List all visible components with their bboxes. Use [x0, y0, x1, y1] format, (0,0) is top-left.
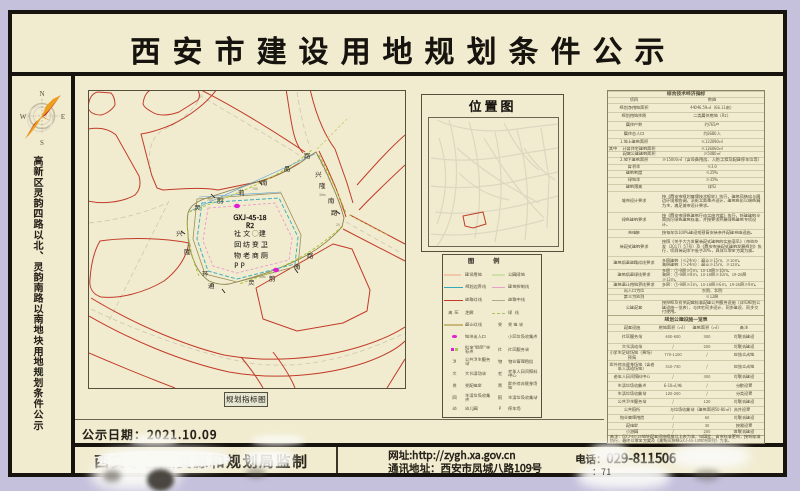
svg-text:E: E: [61, 113, 65, 121]
svg-text:路: 路: [307, 250, 314, 260]
svg-text:韵: 韵: [217, 195, 224, 205]
svg-text:南: 南: [293, 261, 301, 271]
svg-text:路: 路: [304, 150, 311, 160]
svg-text:南: 南: [260, 177, 268, 187]
svg-text:社 文 ○建: 社 文 ○建: [234, 229, 266, 239]
svg-text:灵: 灵: [248, 277, 255, 287]
svg-text:30m: 30m: [319, 193, 326, 198]
svg-text:25: 25: [187, 243, 191, 248]
svg-text:W: W: [20, 113, 27, 121]
svg-text:路: 路: [331, 207, 338, 217]
svg-text:隆: 隆: [319, 180, 326, 190]
svg-text:700: 700: [207, 198, 213, 203]
svg-text:N: N: [39, 90, 44, 98]
svg-text:南: 南: [327, 195, 335, 205]
svg-text:通: 通: [208, 280, 215, 290]
svg-text:莉: 莉: [238, 187, 245, 197]
svg-text:S: S: [40, 139, 44, 147]
svg-text:回 纺 变 卫: 回 纺 变 卫: [234, 240, 268, 250]
svg-text:700: 700: [252, 187, 258, 192]
svg-text:灵: 灵: [194, 202, 201, 212]
svg-text:兴: 兴: [315, 169, 322, 179]
svg-text:晶: 晶: [284, 163, 291, 173]
svg-text:25: 25: [336, 223, 340, 228]
svg-text:韵: 韵: [269, 273, 276, 283]
svg-text:环: 环: [202, 268, 209, 278]
svg-text:P P: P P: [234, 261, 245, 271]
svg-text:物 老 商 厕: 物 老 商 厕: [233, 251, 268, 261]
svg-text:30m: 30m: [259, 275, 266, 280]
svg-text:兴: 兴: [176, 228, 183, 238]
